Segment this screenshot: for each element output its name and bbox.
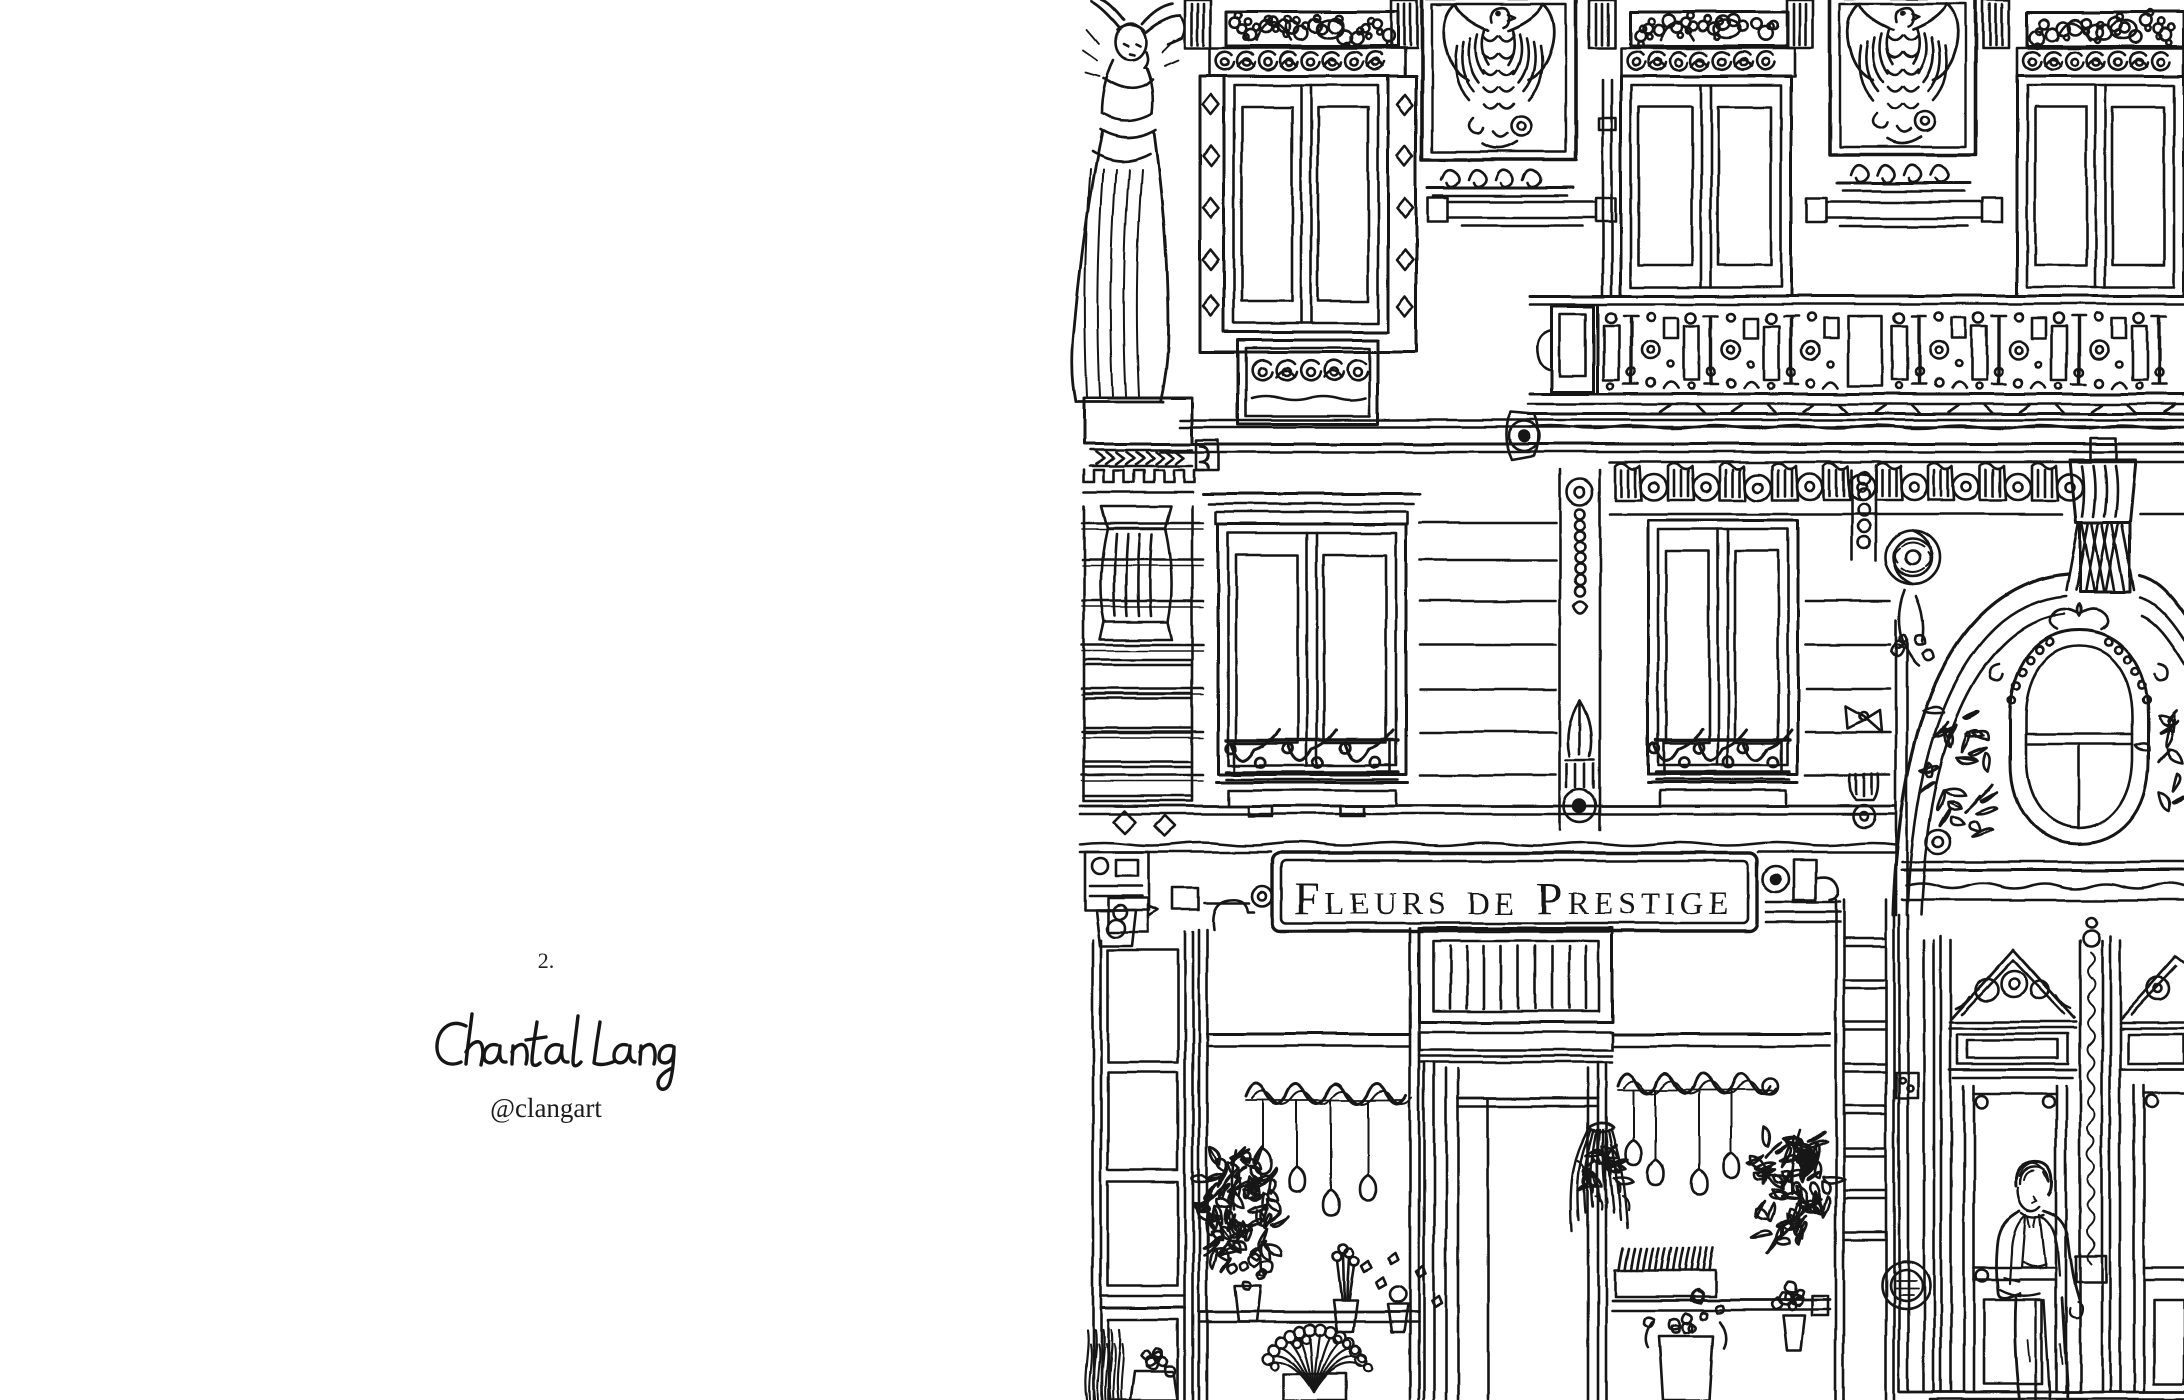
svg-text:2.: 2. [538,948,555,973]
svg-text:Fleurs de Prestige: Fleurs de Prestige [1294,873,1734,924]
svg-text:@clangart: @clangart [490,1093,602,1123]
